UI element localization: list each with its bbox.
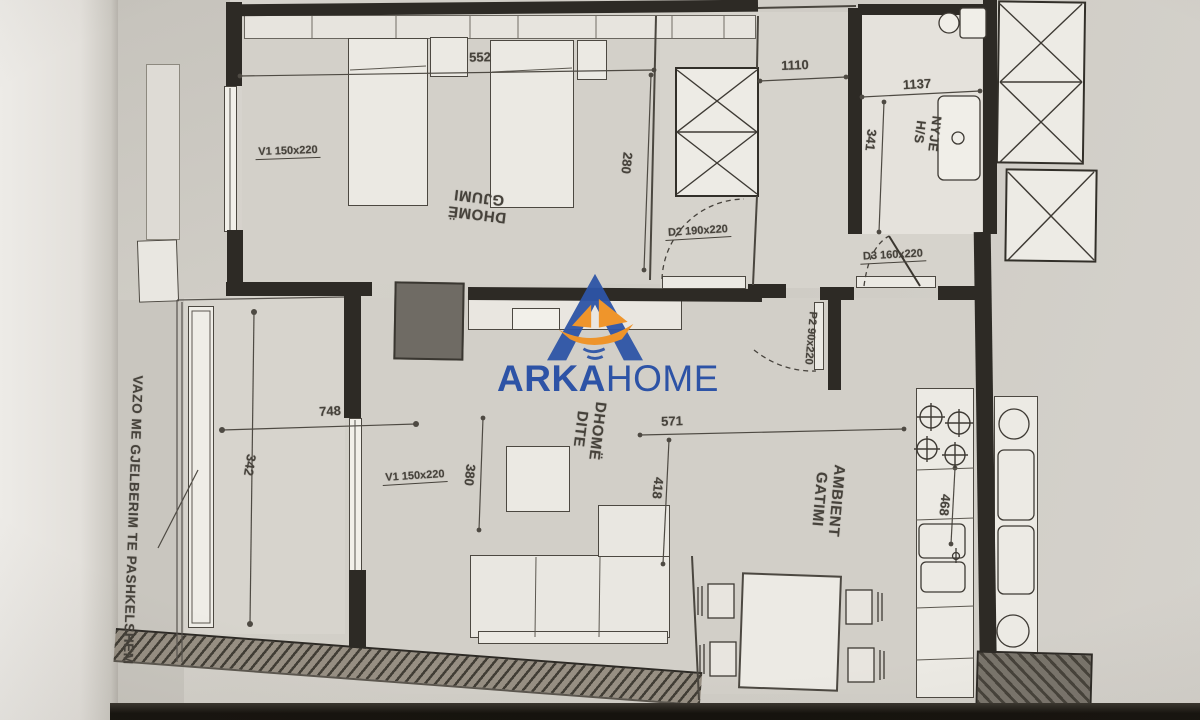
closet-strip <box>244 15 756 39</box>
bathroom-label: NYJE H/S <box>910 113 943 153</box>
sofa-main <box>470 555 670 638</box>
dim-341: 341 <box>862 128 879 151</box>
logo-wordmark: ARKAHOME <box>497 358 719 400</box>
living-room-label: DHOMË DITE <box>568 399 609 461</box>
door-d2-leaf <box>662 276 746 289</box>
window-v1-bedroom <box>224 86 237 232</box>
bed-2 <box>490 40 574 208</box>
planter-box <box>188 306 214 628</box>
window-v1-living <box>349 418 362 572</box>
dim-418: 418 <box>649 476 666 499</box>
dim-1137: 1137 <box>903 76 932 92</box>
wall-pier-c <box>938 286 986 300</box>
bed-1 <box>348 38 428 206</box>
wall-balcony-upper <box>344 294 361 418</box>
page-bottom-shadow <box>110 703 1200 720</box>
dim-571: 571 <box>661 413 683 429</box>
door-d3-frame <box>856 276 936 288</box>
dining-table <box>738 572 842 691</box>
stair-hatch-a <box>996 0 1086 164</box>
wall-left-upper <box>226 2 242 86</box>
logo-wordmark-home: HOME <box>606 358 719 399</box>
arka-home-logo-icon <box>534 272 656 368</box>
wall-right-upper <box>983 0 997 234</box>
kitchen-counter <box>916 388 974 698</box>
dim-468: 468 <box>936 493 953 516</box>
tv-wardrobe-block <box>393 281 464 360</box>
outside-ledge-upper <box>146 64 180 240</box>
coffee-table <box>506 446 570 512</box>
sofa-chaise <box>598 505 670 557</box>
neighbor-appliance-column <box>994 396 1038 668</box>
bedroom-label: DHOMË GJUMI <box>447 185 509 226</box>
wall-bath-top <box>858 4 988 15</box>
shaft-box <box>675 67 759 197</box>
logo-wordmark-arka: ARKA <box>497 358 606 399</box>
dim-380: 380 <box>461 463 478 486</box>
nightstand-2 <box>577 40 607 80</box>
page-left-margin <box>0 0 118 720</box>
nightstand-1 <box>430 37 468 77</box>
dim-280: 280 <box>618 151 635 174</box>
wall-pier-a <box>748 284 786 298</box>
window-v1-bedroom-label: V1 150x220 <box>255 144 321 160</box>
dim-1110: 1110 <box>781 57 809 73</box>
wall-bath-left <box>848 8 862 234</box>
sofa-front-edge <box>478 631 668 644</box>
wall-p2-stub <box>828 298 841 390</box>
kitchen-label: AMBIENT GATIMI <box>807 462 847 537</box>
outside-unit <box>137 239 179 302</box>
dim-552: 552 <box>469 49 491 65</box>
floorplan-scan: DHOMË GJUMI DHOMË DITE AMBIENT GATIMI NY… <box>0 0 1200 720</box>
stair-hatch-b <box>1004 168 1097 262</box>
dim-748: 748 <box>319 403 341 419</box>
